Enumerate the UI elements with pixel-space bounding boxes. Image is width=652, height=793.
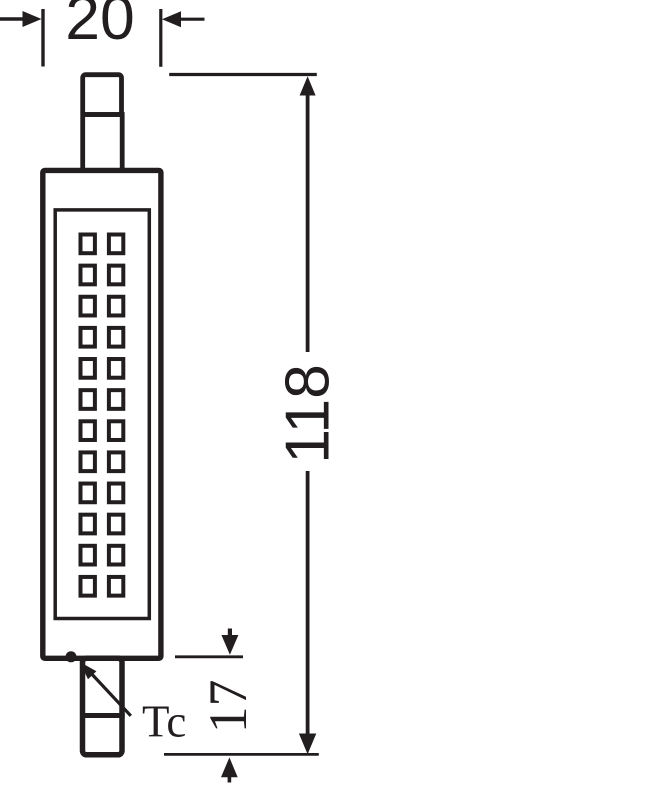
svg-text:118: 118 (273, 364, 343, 464)
svg-text:20: 20 (65, 0, 135, 53)
svg-text:17: 17 (198, 680, 258, 734)
svg-text:Tc: Tc (142, 696, 186, 746)
